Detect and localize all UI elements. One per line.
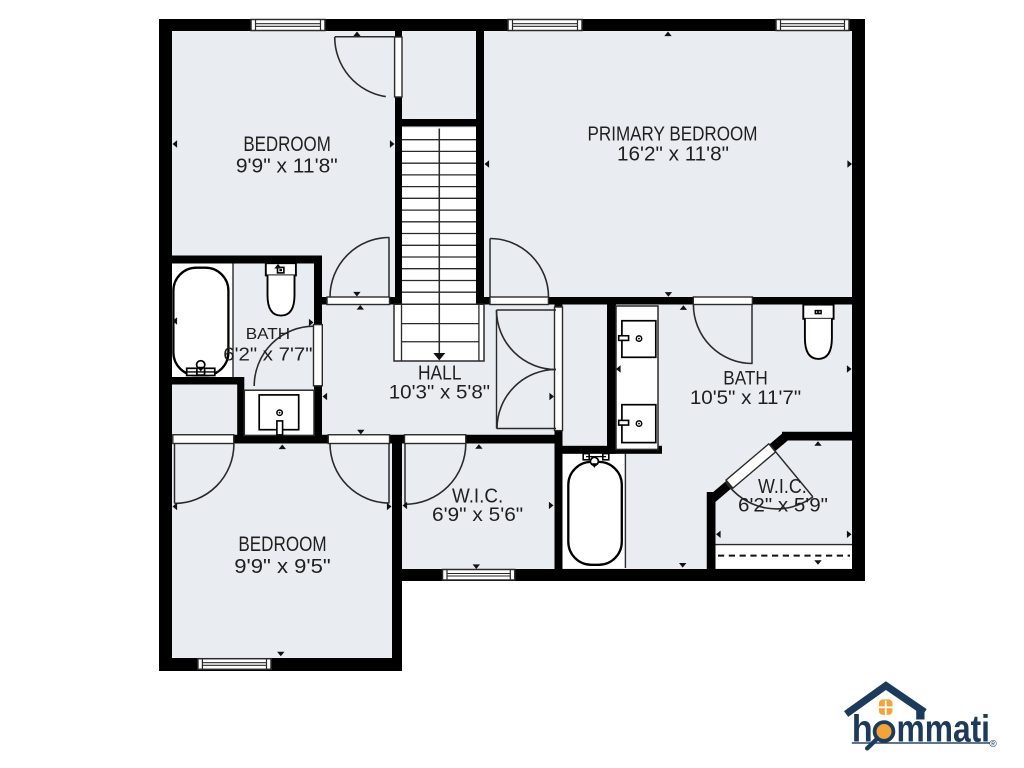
svg-text:BEDROOM: BEDROOM [238, 533, 326, 556]
svg-text:BATH: BATH [246, 326, 290, 343]
svg-text:6'2" x 5'9": 6'2" x 5'9" [738, 494, 828, 516]
svg-text:10'5" x 11'7": 10'5" x 11'7" [690, 388, 801, 409]
svg-text:PRIMARY BEDROOM: PRIMARY BEDROOM [588, 123, 758, 146]
svg-text:mmati: mmati [897, 709, 991, 751]
svg-text:10'3" x 5'8": 10'3" x 5'8" [389, 382, 490, 404]
svg-text:16'2" x 11'8": 16'2" x 11'8" [617, 143, 729, 165]
svg-text:®: ® [989, 739, 997, 750]
svg-text:9'9" x 9'5": 9'9" x 9'5" [234, 556, 330, 578]
svg-text:BATH: BATH [723, 368, 768, 390]
svg-text:6'9" x 5'6": 6'9" x 5'6" [432, 504, 523, 526]
svg-text:9'9" x 11'8": 9'9" x 11'8" [236, 155, 338, 177]
svg-text:BEDROOM: BEDROOM [243, 133, 331, 156]
svg-text:6'2" x 7'7": 6'2" x 7'7" [223, 344, 312, 365]
